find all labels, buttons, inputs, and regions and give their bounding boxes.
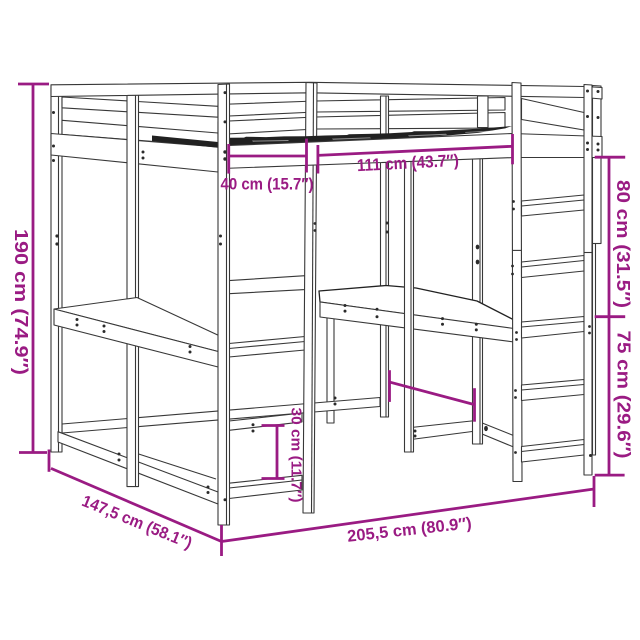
svg-text:40 cm (15.7″): 40 cm (15.7″)	[221, 175, 314, 194]
svg-text:80 cm (31.5″): 80 cm (31.5″)	[613, 180, 634, 308]
svg-text:30 cm (11.7″): 30 cm (11.7″)	[287, 408, 303, 503]
svg-text:75 cm (29.6″): 75 cm (29.6″)	[614, 331, 635, 459]
svg-text:190 cm (74.9″): 190 cm (74.9″)	[11, 229, 32, 375]
